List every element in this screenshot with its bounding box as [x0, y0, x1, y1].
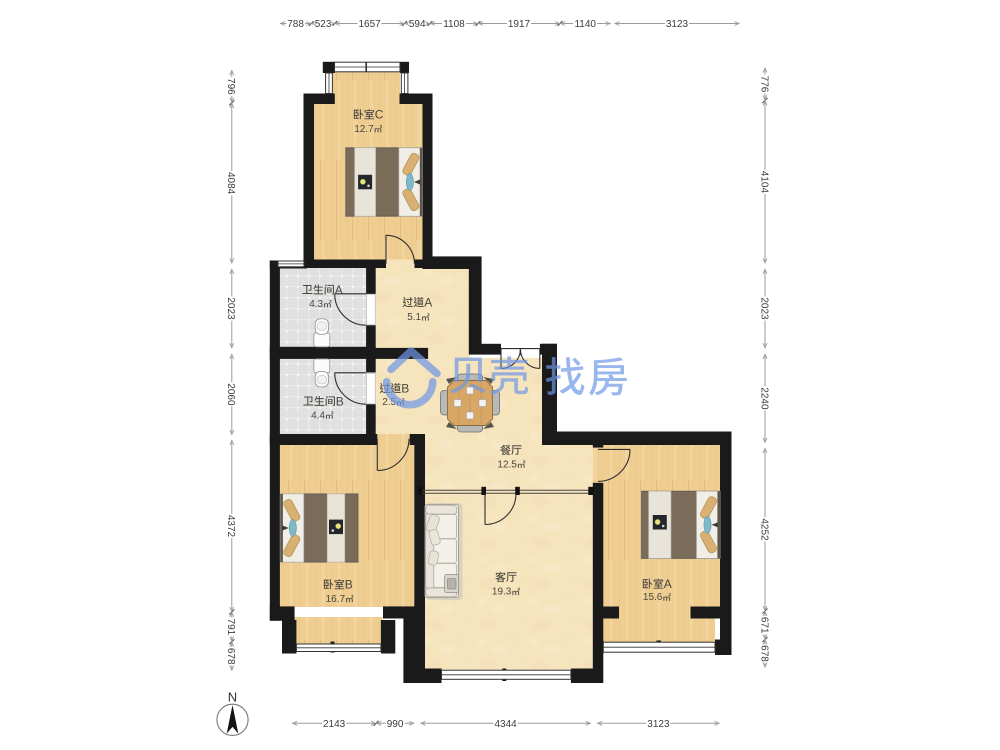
svg-text:4104: 4104 [758, 171, 769, 194]
svg-text:796: 796 [225, 78, 236, 95]
svg-text:4372: 4372 [225, 515, 236, 538]
svg-text:594: 594 [409, 19, 426, 30]
svg-text:2060: 2060 [225, 383, 236, 406]
svg-text:12.5: 12.5 [497, 459, 517, 470]
svg-text:B: B [401, 381, 409, 395]
svg-text:4344: 4344 [494, 719, 517, 730]
svg-text:12.7: 12.7 [354, 124, 374, 135]
svg-text:1657: 1657 [358, 19, 381, 30]
svg-text:1140: 1140 [574, 19, 596, 30]
svg-text:C: C [375, 108, 384, 122]
svg-text:1108: 1108 [443, 19, 465, 30]
svg-text:1917: 1917 [508, 19, 531, 30]
svg-text:16.7: 16.7 [326, 594, 346, 605]
svg-text:678: 678 [225, 648, 236, 665]
svg-text:4.4: 4.4 [311, 410, 325, 421]
svg-text:671: 671 [758, 617, 769, 634]
svg-text:791: 791 [225, 619, 236, 636]
svg-text:4252: 4252 [758, 518, 769, 541]
svg-text:3123: 3123 [666, 19, 689, 30]
svg-text:678: 678 [758, 645, 769, 662]
svg-text:990: 990 [387, 719, 404, 730]
svg-text:4084: 4084 [225, 172, 236, 195]
svg-text:19.3: 19.3 [492, 587, 512, 598]
svg-text:A: A [664, 577, 672, 591]
svg-text:776: 776 [758, 76, 769, 93]
svg-text:2023: 2023 [225, 297, 236, 320]
svg-text:4.3: 4.3 [309, 299, 323, 310]
svg-text:2023: 2023 [758, 297, 769, 320]
svg-text:5.1: 5.1 [407, 312, 421, 323]
svg-text:B: B [345, 578, 353, 592]
svg-text:3123: 3123 [647, 719, 670, 730]
svg-text:788: 788 [287, 19, 304, 30]
svg-text:2143: 2143 [323, 719, 346, 730]
svg-text:2240: 2240 [758, 387, 769, 410]
svg-text:A: A [335, 283, 343, 297]
svg-text:B: B [336, 394, 344, 408]
svg-text:A: A [424, 295, 432, 309]
svg-text:523: 523 [315, 19, 332, 30]
svg-text:15.6: 15.6 [643, 592, 663, 603]
svg-text:N: N [228, 690, 237, 705]
